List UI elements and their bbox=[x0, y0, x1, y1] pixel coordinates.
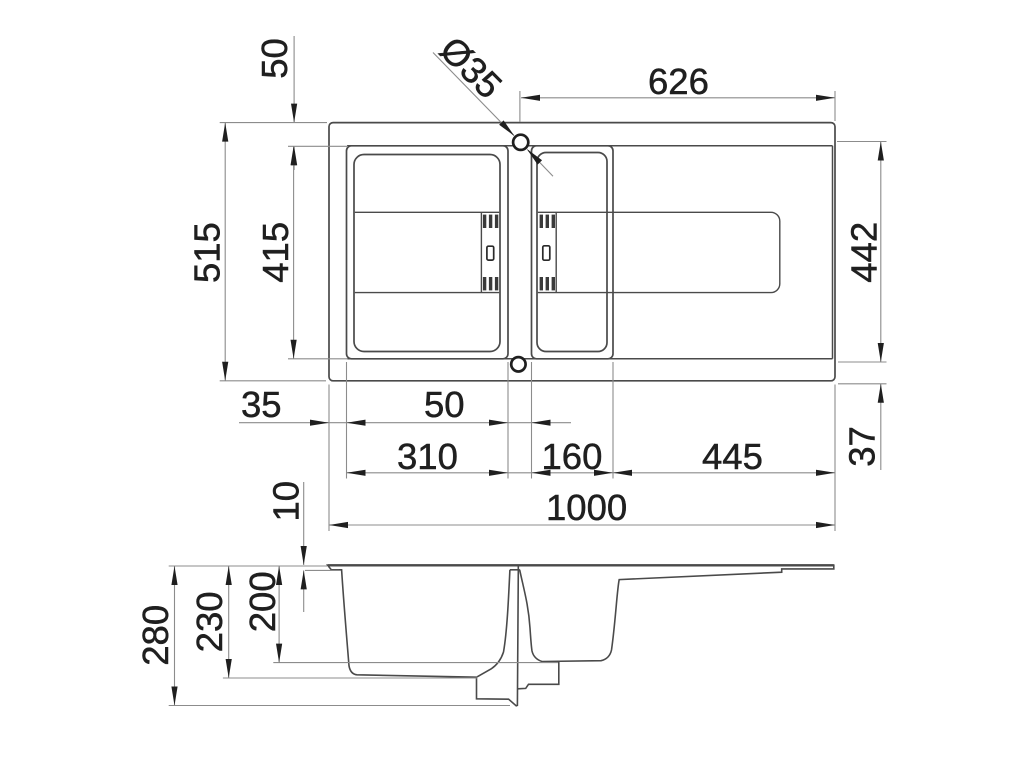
svg-text:50: 50 bbox=[424, 384, 465, 425]
svg-text:310: 310 bbox=[397, 436, 458, 477]
svg-text:280: 280 bbox=[135, 605, 176, 666]
svg-text:200: 200 bbox=[242, 571, 283, 632]
svg-text:626: 626 bbox=[648, 61, 709, 102]
svg-text:415: 415 bbox=[255, 222, 296, 283]
svg-text:1000: 1000 bbox=[546, 487, 627, 528]
svg-text:Ø35: Ø35 bbox=[432, 29, 510, 107]
svg-text:445: 445 bbox=[702, 436, 763, 477]
svg-text:50: 50 bbox=[254, 38, 295, 79]
svg-text:37: 37 bbox=[842, 426, 883, 467]
svg-text:35: 35 bbox=[241, 384, 282, 425]
svg-text:515: 515 bbox=[186, 222, 227, 283]
svg-text:10: 10 bbox=[265, 481, 306, 522]
svg-text:442: 442 bbox=[844, 222, 885, 283]
svg-text:160: 160 bbox=[542, 436, 603, 477]
svg-text:230: 230 bbox=[189, 591, 230, 652]
